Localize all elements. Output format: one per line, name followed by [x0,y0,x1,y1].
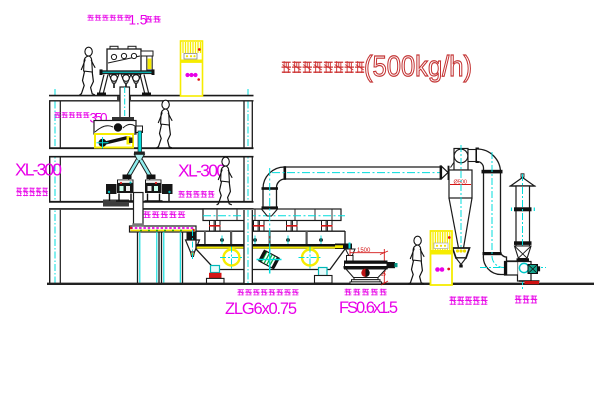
svg-text:1500: 1500 [357,248,371,254]
svg-text:XL-300: XL-300 [15,160,62,180]
svg-text:(500kg/h): (500kg/h) [364,51,472,83]
svg-text:1.5: 1.5 [129,13,148,28]
svg-text:Ø500: Ø500 [454,180,467,186]
svg-text:FS0.6x1.5: FS0.6x1.5 [339,299,398,317]
svg-text:ZLG6x0.75: ZLG6x0.75 [225,300,297,318]
